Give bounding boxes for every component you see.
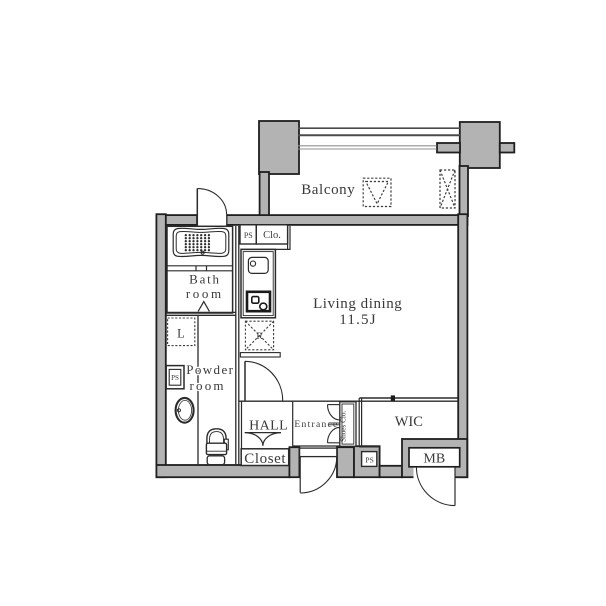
svg-text:PS: PS xyxy=(365,455,373,464)
svg-text:R: R xyxy=(256,332,263,342)
svg-text:WIC: WIC xyxy=(395,414,423,430)
svg-text:Shoes Clo.: Shoes Clo. xyxy=(340,411,348,442)
svg-text:11.5J: 11.5J xyxy=(339,312,377,328)
svg-text:Clo.: Clo. xyxy=(263,230,281,241)
svg-text:PS: PS xyxy=(171,374,179,382)
svg-text:MB: MB xyxy=(423,451,445,466)
svg-text:Balcony: Balcony xyxy=(301,182,355,198)
svg-text:PS: PS xyxy=(244,231,253,240)
svg-text:Powder: Powder xyxy=(186,362,234,377)
svg-text:Bath: Bath xyxy=(189,271,221,286)
svg-text:room: room xyxy=(189,378,225,393)
svg-text:room: room xyxy=(186,286,224,301)
svg-text:L: L xyxy=(177,327,185,341)
svg-text:HALL: HALL xyxy=(249,419,288,434)
svg-text:Living dining: Living dining xyxy=(313,296,402,312)
svg-text:Closet: Closet xyxy=(244,451,286,467)
